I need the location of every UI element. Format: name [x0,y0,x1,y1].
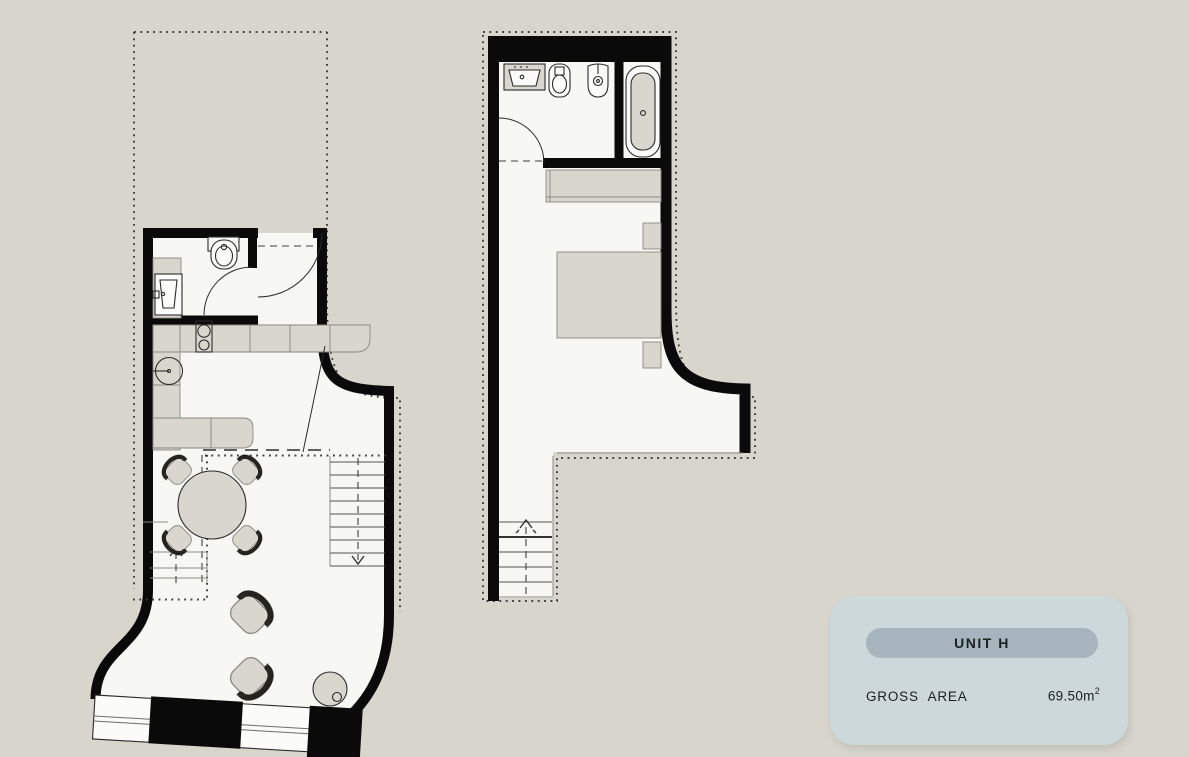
kitchen-counter-low [153,418,253,448]
unit-info-card: UNIT H GROSS AREA 69.50m2 [830,596,1128,745]
top-wall-band [488,36,670,62]
wardrobe [546,170,661,202]
unit-title-pill: UNIT H [866,628,1098,658]
double-bed [557,252,661,338]
lower-floor-plan [92,32,400,757]
bedroom [546,170,661,368]
gross-area-value: 69.50m2 [1048,687,1100,704]
toilet-icon [549,64,570,97]
wall-pier [148,696,243,748]
side-table [313,672,347,706]
bathtub-icon [626,66,660,157]
bidet-icon [588,64,608,97]
nightstand [643,223,661,249]
dining-table [178,471,246,539]
upper-floor-plan [483,32,755,601]
wall-pier [307,706,363,757]
gross-area-label: GROSS AREA [866,689,968,704]
floor-plan-sheet: UNIT H GROSS AREA 69.50m2 [0,0,1189,757]
washbasin-icon [153,274,182,315]
washbasin-icon [504,64,545,90]
unit-title: UNIT H [954,635,1010,651]
nightstand [643,342,661,368]
kitchen-counter-top [153,325,370,352]
